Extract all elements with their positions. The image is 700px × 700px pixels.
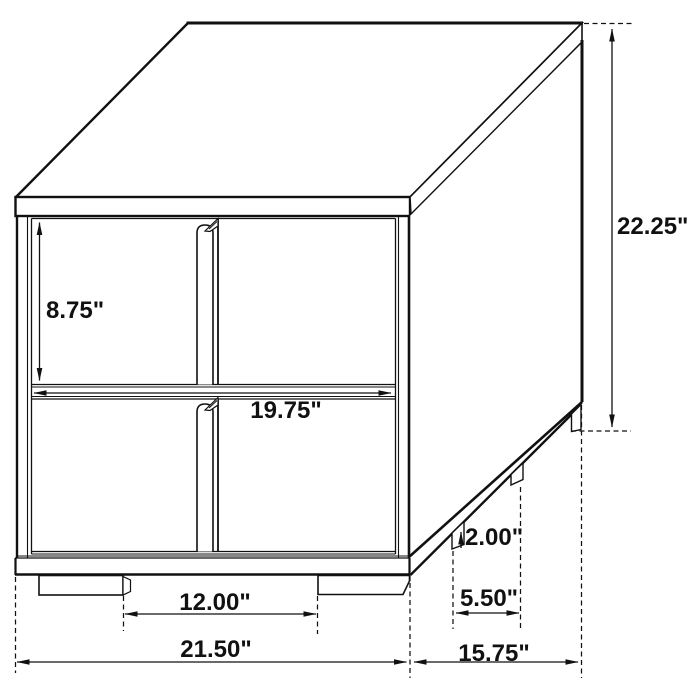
- side-foot-back: [511, 463, 523, 485]
- label-drawer-height: 8.75": [46, 297, 104, 324]
- label-drawer-width: 19.75": [250, 397, 321, 424]
- front-left-foot-side: [123, 577, 131, 596]
- label-overall-height: 22.25": [617, 213, 688, 240]
- diagram-page: 8.75" 19.75" 22.25" 2.00" 5.50" 12.00" 2…: [0, 0, 700, 700]
- side-foot-front: [452, 522, 464, 550]
- label-side-foot-spacing: 5.50": [460, 585, 518, 612]
- front-right-foot: [318, 576, 410, 595]
- top-drawer-handle: [197, 225, 213, 385]
- label-overall-depth: 15.75": [458, 640, 529, 667]
- label-leg-height: 2.00": [465, 524, 523, 551]
- bottom-drawer-handle: [197, 404, 213, 552]
- front-left-foot: [39, 576, 123, 596]
- diagram-canvas: 8.75" 19.75" 22.25" 2.00" 5.50" 12.00" 2…: [0, 0, 700, 700]
- dimension-labels: 8.75" 19.75" 22.25" 2.00" 5.50" 12.00" 2…: [46, 213, 688, 667]
- label-front-foot-spacing: 12.00": [179, 589, 250, 616]
- label-overall-width: 21.50": [180, 636, 251, 663]
- top-slab-front: [16, 197, 411, 216]
